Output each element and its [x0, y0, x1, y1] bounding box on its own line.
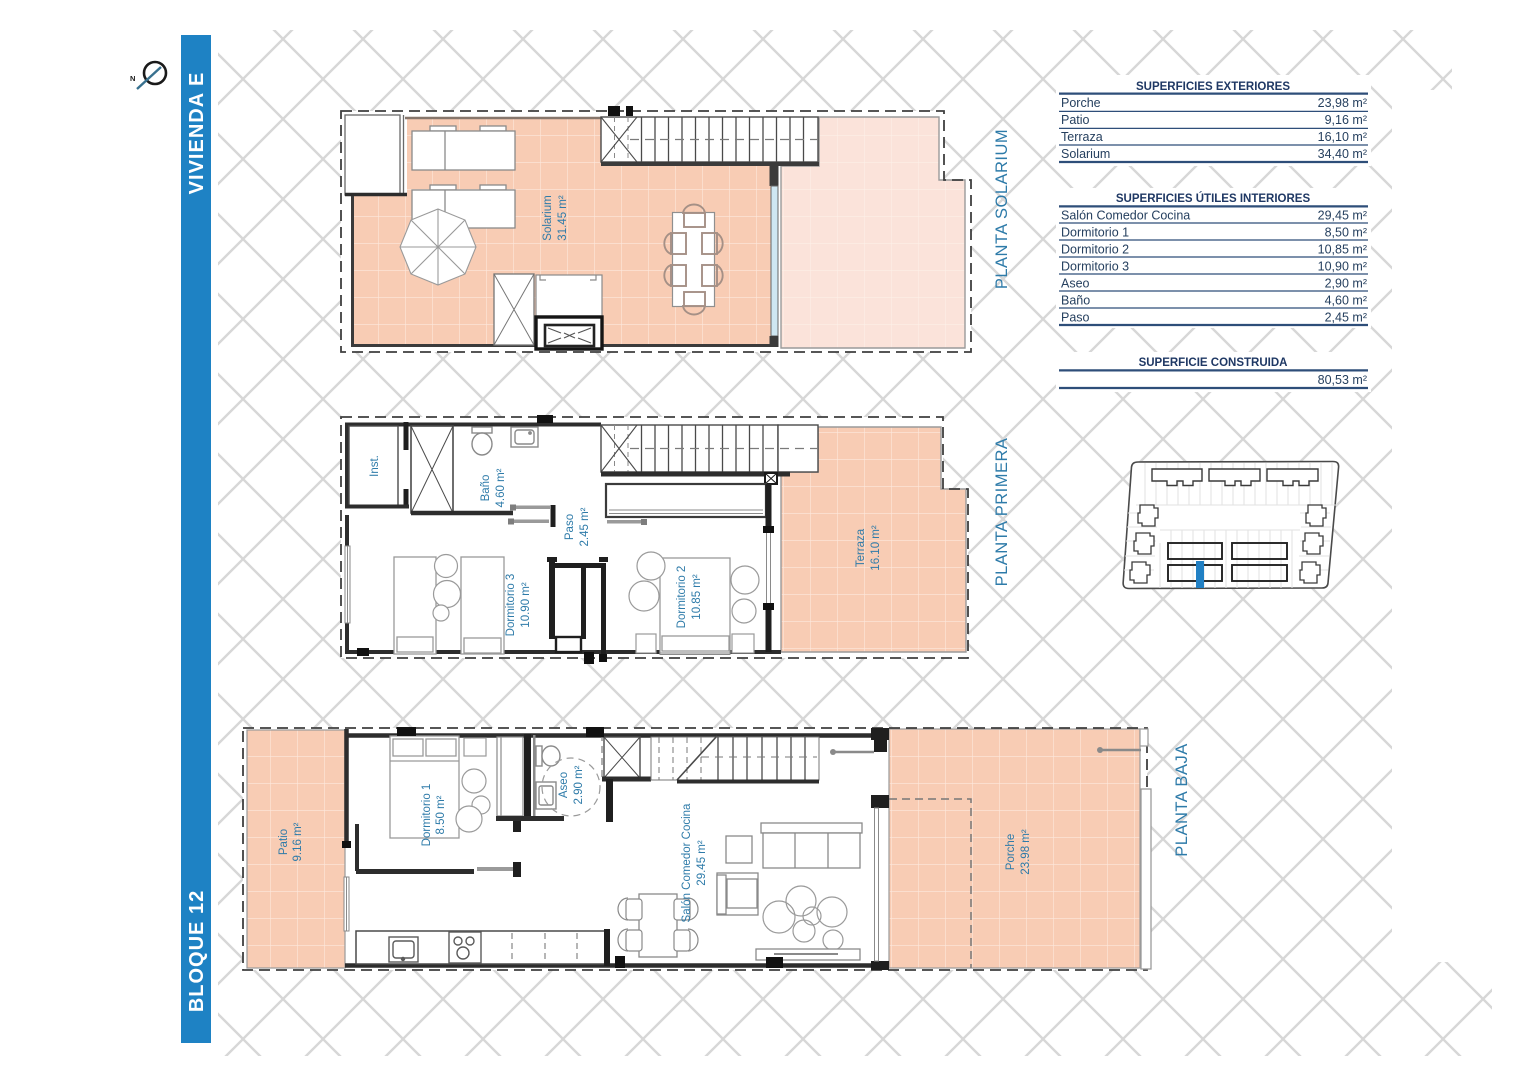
svg-text:Salón Comedor Cocina: Salón Comedor Cocina	[681, 803, 693, 923]
svg-text:Dormitorio 1: Dormitorio 1	[421, 784, 433, 847]
svg-text:8.50 m²: 8.50 m²	[435, 795, 447, 834]
svg-text:Dormitorio 1: Dormitorio 1	[1061, 226, 1129, 240]
svg-text:2.90 m²: 2.90 m²	[573, 765, 585, 804]
svg-text:PLANTA PRIMERA: PLANTA PRIMERA	[993, 438, 1011, 587]
svg-text:Aseo: Aseo	[1061, 277, 1090, 291]
svg-text:9,16 m²: 9,16 m²	[1325, 113, 1367, 127]
svg-text:2,45 m²: 2,45 m²	[1325, 311, 1367, 325]
svg-text:Dormitorio 2: Dormitorio 2	[676, 566, 688, 629]
svg-text:Solarium: Solarium	[1061, 147, 1110, 161]
svg-text:10.85 m²: 10.85 m²	[691, 574, 703, 620]
svg-text:SUPERFICIES ÚTILES INTERIORES: SUPERFICIES ÚTILES INTERIORES	[1116, 192, 1311, 205]
svg-text:Dormitorio 3: Dormitorio 3	[505, 574, 517, 637]
svg-text:31.45 m²: 31.45 m²	[557, 195, 569, 241]
svg-text:10,85 m²: 10,85 m²	[1318, 243, 1367, 257]
svg-text:SUPERFICIE CONSTRUIDA: SUPERFICIE CONSTRUIDA	[1139, 357, 1288, 369]
svg-text:PLANTA SOLARIUM: PLANTA SOLARIUM	[993, 129, 1011, 289]
svg-text:10.90 m²: 10.90 m²	[520, 582, 532, 628]
svg-text:Terraza: Terraza	[1061, 130, 1103, 144]
svg-text:Salón Comedor Cocina: Salón Comedor Cocina	[1061, 209, 1190, 223]
svg-text:Baño: Baño	[1061, 294, 1090, 308]
svg-text:29.45 m²: 29.45 m²	[696, 840, 708, 886]
svg-text:8,50 m²: 8,50 m²	[1325, 226, 1367, 240]
svg-text:Porche: Porche	[1005, 834, 1017, 870]
svg-text:29,45 m²: 29,45 m²	[1318, 209, 1367, 223]
svg-text:16.10 m²: 16.10 m²	[870, 525, 882, 571]
svg-text:PLANTA BAJA: PLANTA BAJA	[1173, 743, 1191, 856]
svg-text:23.98 m²: 23.98 m²	[1020, 829, 1032, 875]
svg-text:Patio: Patio	[1061, 113, 1090, 127]
svg-text:Terraza: Terraza	[855, 528, 867, 567]
svg-text:4,60 m²: 4,60 m²	[1325, 294, 1367, 308]
svg-text:SUPERFICIES EXTERIORES: SUPERFICIES EXTERIORES	[1136, 81, 1290, 93]
svg-text:80,53 m²: 80,53 m²	[1318, 373, 1367, 387]
svg-text:16,10 m²: 16,10 m²	[1318, 130, 1367, 144]
svg-text:Aseo: Aseo	[558, 772, 570, 798]
svg-text:34,40 m²: 34,40 m²	[1318, 147, 1367, 161]
svg-text:Paso: Paso	[564, 514, 576, 540]
svg-text:2.45 m²: 2.45 m²	[579, 507, 591, 546]
svg-text:Baño: Baño	[480, 475, 492, 502]
svg-text:Dormitorio 2: Dormitorio 2	[1061, 243, 1129, 257]
svg-text:Dormitorio 3: Dormitorio 3	[1061, 260, 1129, 274]
svg-text:BLOQUE 12: BLOQUE 12	[186, 890, 208, 1012]
svg-text:Paso: Paso	[1061, 311, 1090, 325]
svg-text:Solarium: Solarium	[542, 195, 554, 240]
svg-text:Porche: Porche	[1061, 96, 1101, 110]
svg-text:4.60 m²: 4.60 m²	[495, 468, 507, 507]
svg-text:Patio: Patio	[278, 829, 290, 855]
svg-text:N: N	[130, 74, 135, 83]
svg-text:23,98 m²: 23,98 m²	[1318, 96, 1367, 110]
svg-text:9.16 m²: 9.16 m²	[292, 822, 304, 861]
svg-text:2,90 m²: 2,90 m²	[1325, 277, 1367, 291]
svg-text:Inst.: Inst.	[369, 455, 381, 477]
svg-text:VIVIENDA E: VIVIENDA E	[186, 72, 208, 195]
svg-text:10,90 m²: 10,90 m²	[1318, 260, 1367, 274]
